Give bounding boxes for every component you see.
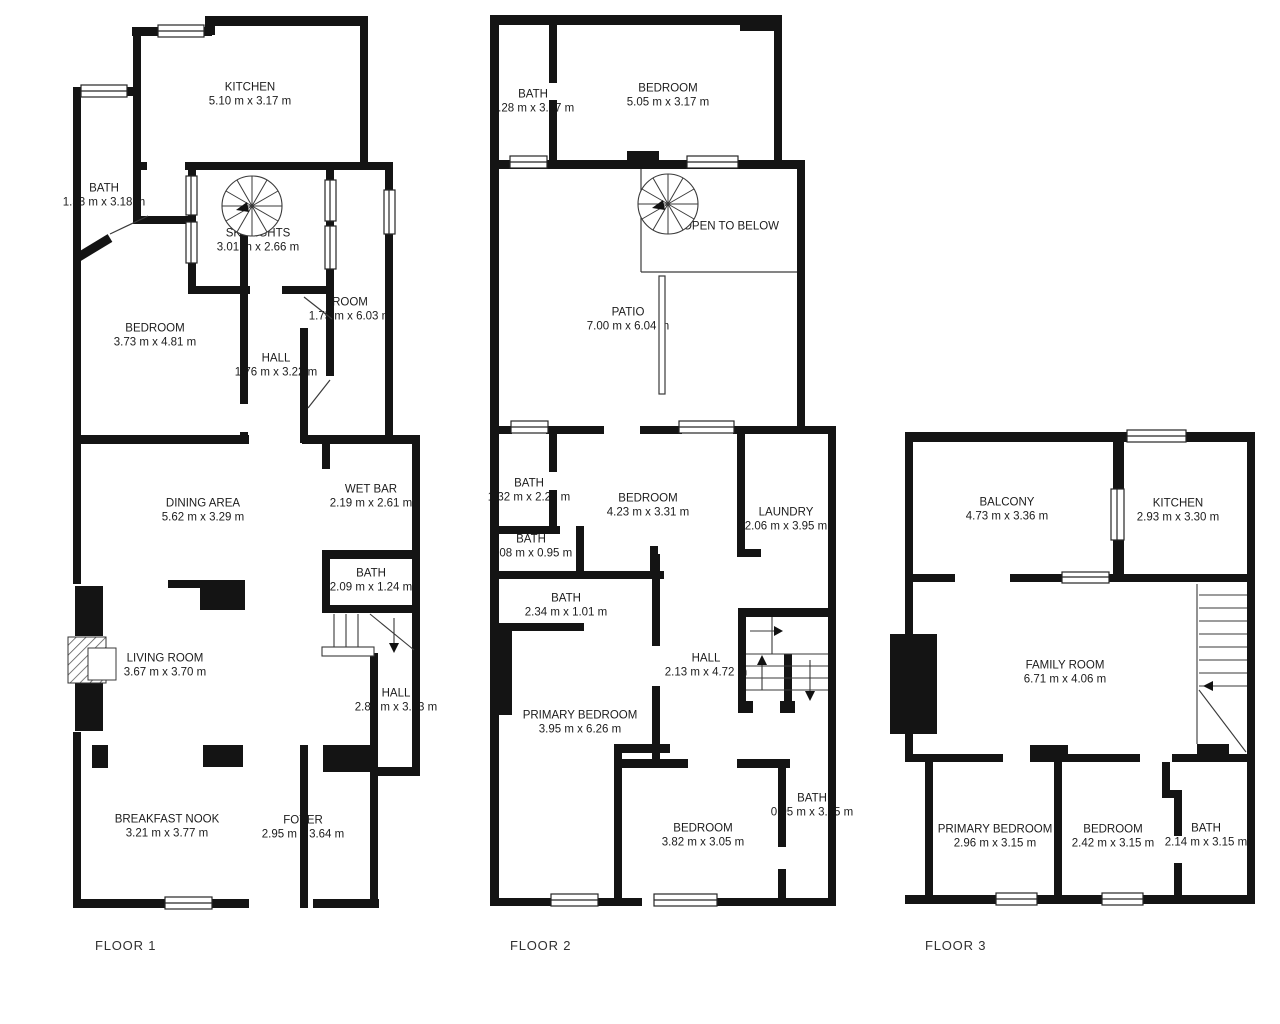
floor3-stairs (1197, 584, 1247, 752)
f1-label-foyer: FOYER2.95 m x 3.64 m (262, 815, 344, 842)
f1-label-hall-upper: HALL1.76 m x 3.22 m (235, 353, 317, 380)
floor1-fireplace (68, 637, 116, 683)
f2-label-primary-bedroom: PRIMARY BEDROOM3.95 m x 6.26 m (523, 710, 638, 737)
f1-label-living-room: LIVING ROOM3.67 m x 3.70 m (124, 653, 206, 680)
f2-label-patio: PATIO7.00 m x 6.04 m (587, 307, 669, 334)
f1-label-hall-lower: HALL2.84 m x 3.83 m (355, 688, 437, 715)
f2-label-laundry: LAUNDRY2.06 m x 3.95 m (745, 507, 827, 534)
f2-label-bath-2: BATH2.08 m x 0.95 m (490, 534, 572, 561)
f3-label-family-room: FAMILY ROOM6.71 m x 4.06 m (1024, 660, 1106, 687)
f2-label-bath-lower: BATH0.95 m x 3.05 m (771, 793, 853, 820)
f1-label-dining-area: DINING AREA5.62 m x 3.29 m (162, 498, 244, 525)
f1-label-room: ROOM1.75 m x 6.03 m (309, 297, 391, 324)
f3-label-primary-bedroom: PRIMARY BEDROOM2.96 m x 3.15 m (938, 824, 1053, 851)
floor2-windows (510, 156, 738, 906)
floor1-title: FLOOR 1 (95, 938, 156, 953)
f2-label-bath-3: BATH2.34 m x 1.01 m (525, 593, 607, 620)
f1-label-kitchen: KITCHEN5.10 m x 3.17 m (209, 82, 291, 109)
floor1-windows (81, 25, 395, 909)
f1-label-bedroom: BEDROOM3.73 m x 4.81 m (114, 323, 196, 350)
f1-label-skylights: SKYLIGHTS3.01 m x 2.66 m (217, 228, 299, 255)
f1-label-bath-upper: BATH1.33 m x 3.18 m (63, 183, 145, 210)
floor2-stairs (746, 617, 828, 701)
f1-label-breakfast-nook: BREAKFAST NOOK3.21 m x 3.77 m (115, 814, 220, 841)
f3-label-kitchen: KITCHEN2.93 m x 3.30 m (1137, 498, 1219, 525)
f2-label-bath-1: BATH1.32 m x 2.26 m (488, 478, 570, 505)
f2-label-open-to-below: OPEN TO BELOW (683, 220, 779, 234)
floor1-walls (73, 16, 420, 908)
f2-label-hall: HALL2.13 m x 4.72 m (665, 653, 747, 680)
floor2-walls (490, 15, 836, 906)
f3-label-balcony: BALCONY4.73 m x 3.36 m (966, 497, 1048, 524)
f2-label-bath-upper: BATH1.28 m x 3.17 m (492, 89, 574, 116)
f2-label-bedroom-mid: BEDROOM4.23 m x 3.31 m (607, 493, 689, 520)
floor2-title: FLOOR 2 (510, 938, 571, 953)
floor2-open-to-below-rails (641, 169, 797, 394)
f2-label-bedroom-upper: BEDROOM5.05 m x 3.17 m (627, 83, 709, 110)
floor3-title: FLOOR 3 (925, 938, 986, 953)
floor-plan-page: KITCHEN5.10 m x 3.17 m BATH1.33 m x 3.18… (0, 0, 1280, 1024)
f2-label-bedroom-lower: BEDROOM3.82 m x 3.05 m (662, 823, 744, 850)
f1-label-bath-mid: BATH2.09 m x 1.24 m (330, 568, 412, 595)
f3-label-bedroom: BEDROOM2.42 m x 3.15 m (1072, 824, 1154, 851)
floor1-stairs (322, 614, 414, 656)
f1-label-wet-bar: WET BAR2.19 m x 2.61 m (330, 484, 412, 511)
f3-label-bath: BATH2.14 m x 3.15 m (1165, 823, 1247, 850)
